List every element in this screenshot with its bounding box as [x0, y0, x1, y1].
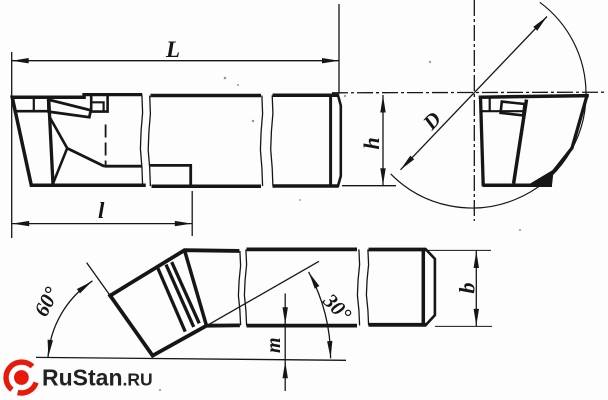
svg-text:60°: 60°: [29, 283, 64, 321]
svg-text:30°: 30°: [318, 288, 357, 327]
svg-text:D: D: [417, 107, 446, 135]
svg-text:L: L: [165, 37, 180, 62]
svg-text:l: l: [98, 198, 105, 223]
svg-text:m: m: [263, 337, 285, 353]
svg-text:h: h: [359, 137, 384, 149]
svg-text:b: b: [455, 283, 480, 294]
svg-text:RuStan.RU: RuStan.RU: [42, 365, 153, 391]
